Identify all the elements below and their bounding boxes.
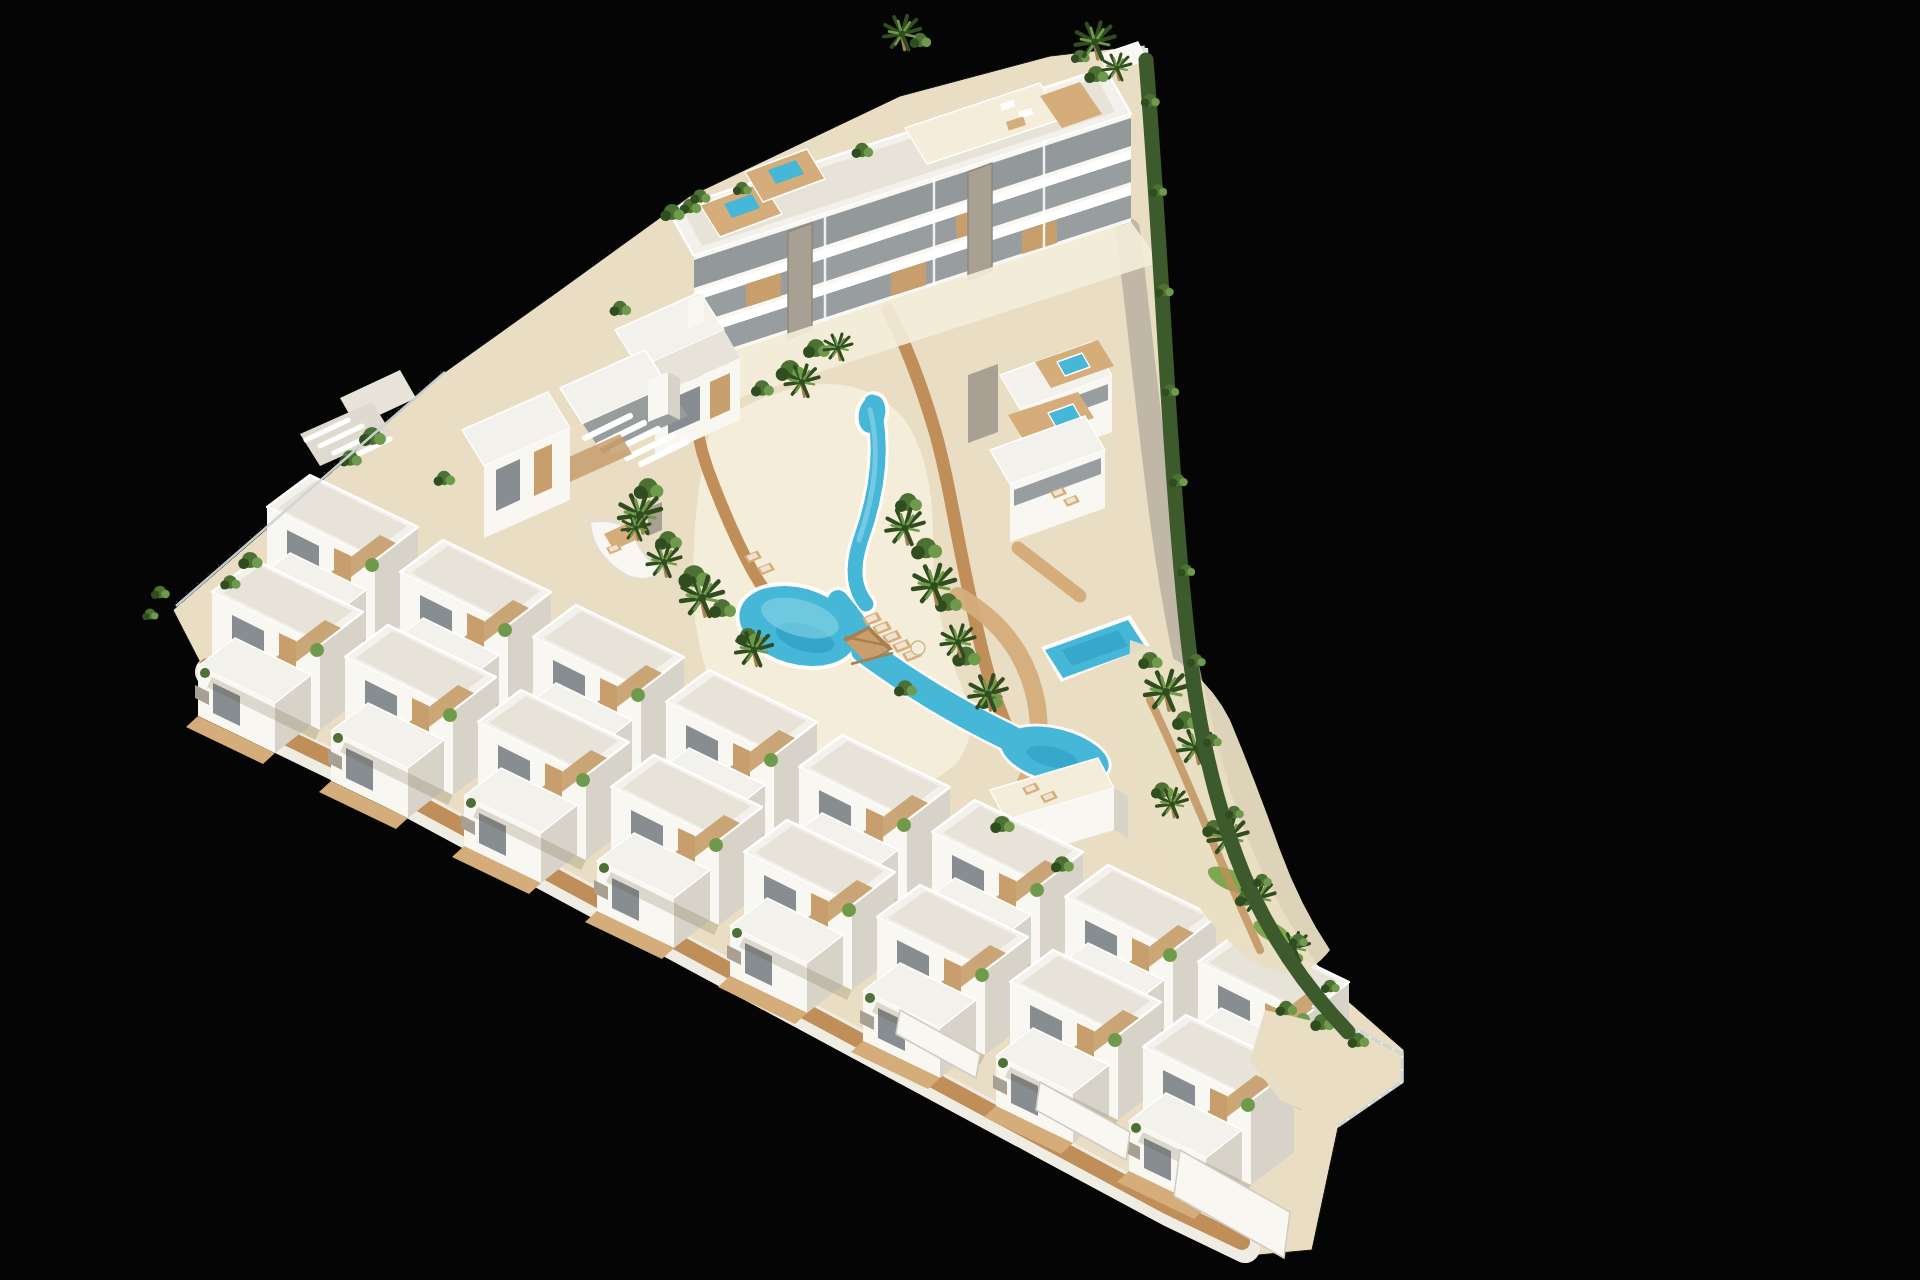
parasol: [911, 641, 925, 655]
stone-wall: [968, 364, 998, 443]
stone-column-1: [788, 223, 812, 339]
render-canvas: architectural-3d-render: [0, 0, 1920, 1280]
stone-column-2: [968, 163, 992, 280]
aerial-render: architectural-3d-render: [0, 0, 1920, 1280]
